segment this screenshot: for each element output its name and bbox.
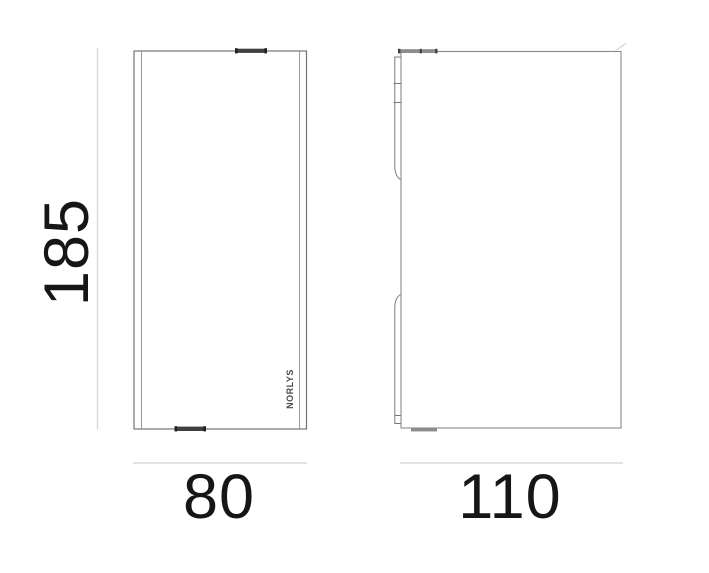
side-top-clip-tick xyxy=(420,49,422,54)
side-view xyxy=(394,44,626,432)
front-bottom-clip-bar xyxy=(175,427,207,431)
front-view xyxy=(134,48,307,431)
side-depth-dimension-label: 110 xyxy=(400,464,620,530)
height-dimension-label: 185 xyxy=(34,142,100,362)
bracket-upper-segment xyxy=(395,57,401,180)
front-top-clip-cap-right xyxy=(264,48,267,53)
corner-tick xyxy=(616,44,627,51)
front-bottom-clip-cap-right xyxy=(203,426,206,431)
side-bottom-clip-bar xyxy=(411,428,437,431)
dimension-drawing: 185 80 110 NORLYS xyxy=(0,0,709,573)
wall-bracket-profile xyxy=(394,57,402,424)
front-bottom-clip xyxy=(175,426,207,431)
bracket-lower-segment xyxy=(395,295,401,424)
brand-logo-text: NORLYS xyxy=(284,359,296,419)
front-top-clip xyxy=(235,48,267,53)
front-top-clip-bar xyxy=(235,49,267,53)
front-width-dimension-label: 80 xyxy=(119,464,319,530)
dimension-lines xyxy=(98,48,624,463)
side-top-clip xyxy=(398,49,438,54)
front-top-clip-cap-left xyxy=(235,48,238,53)
side-top-clip-cap-left xyxy=(398,49,400,54)
side-top-clip-bar xyxy=(398,49,438,53)
side-view-outline xyxy=(401,52,621,429)
front-bottom-clip-cap-left xyxy=(175,426,178,431)
side-top-clip-cap-right xyxy=(435,49,437,54)
front-view-outline xyxy=(134,51,307,429)
